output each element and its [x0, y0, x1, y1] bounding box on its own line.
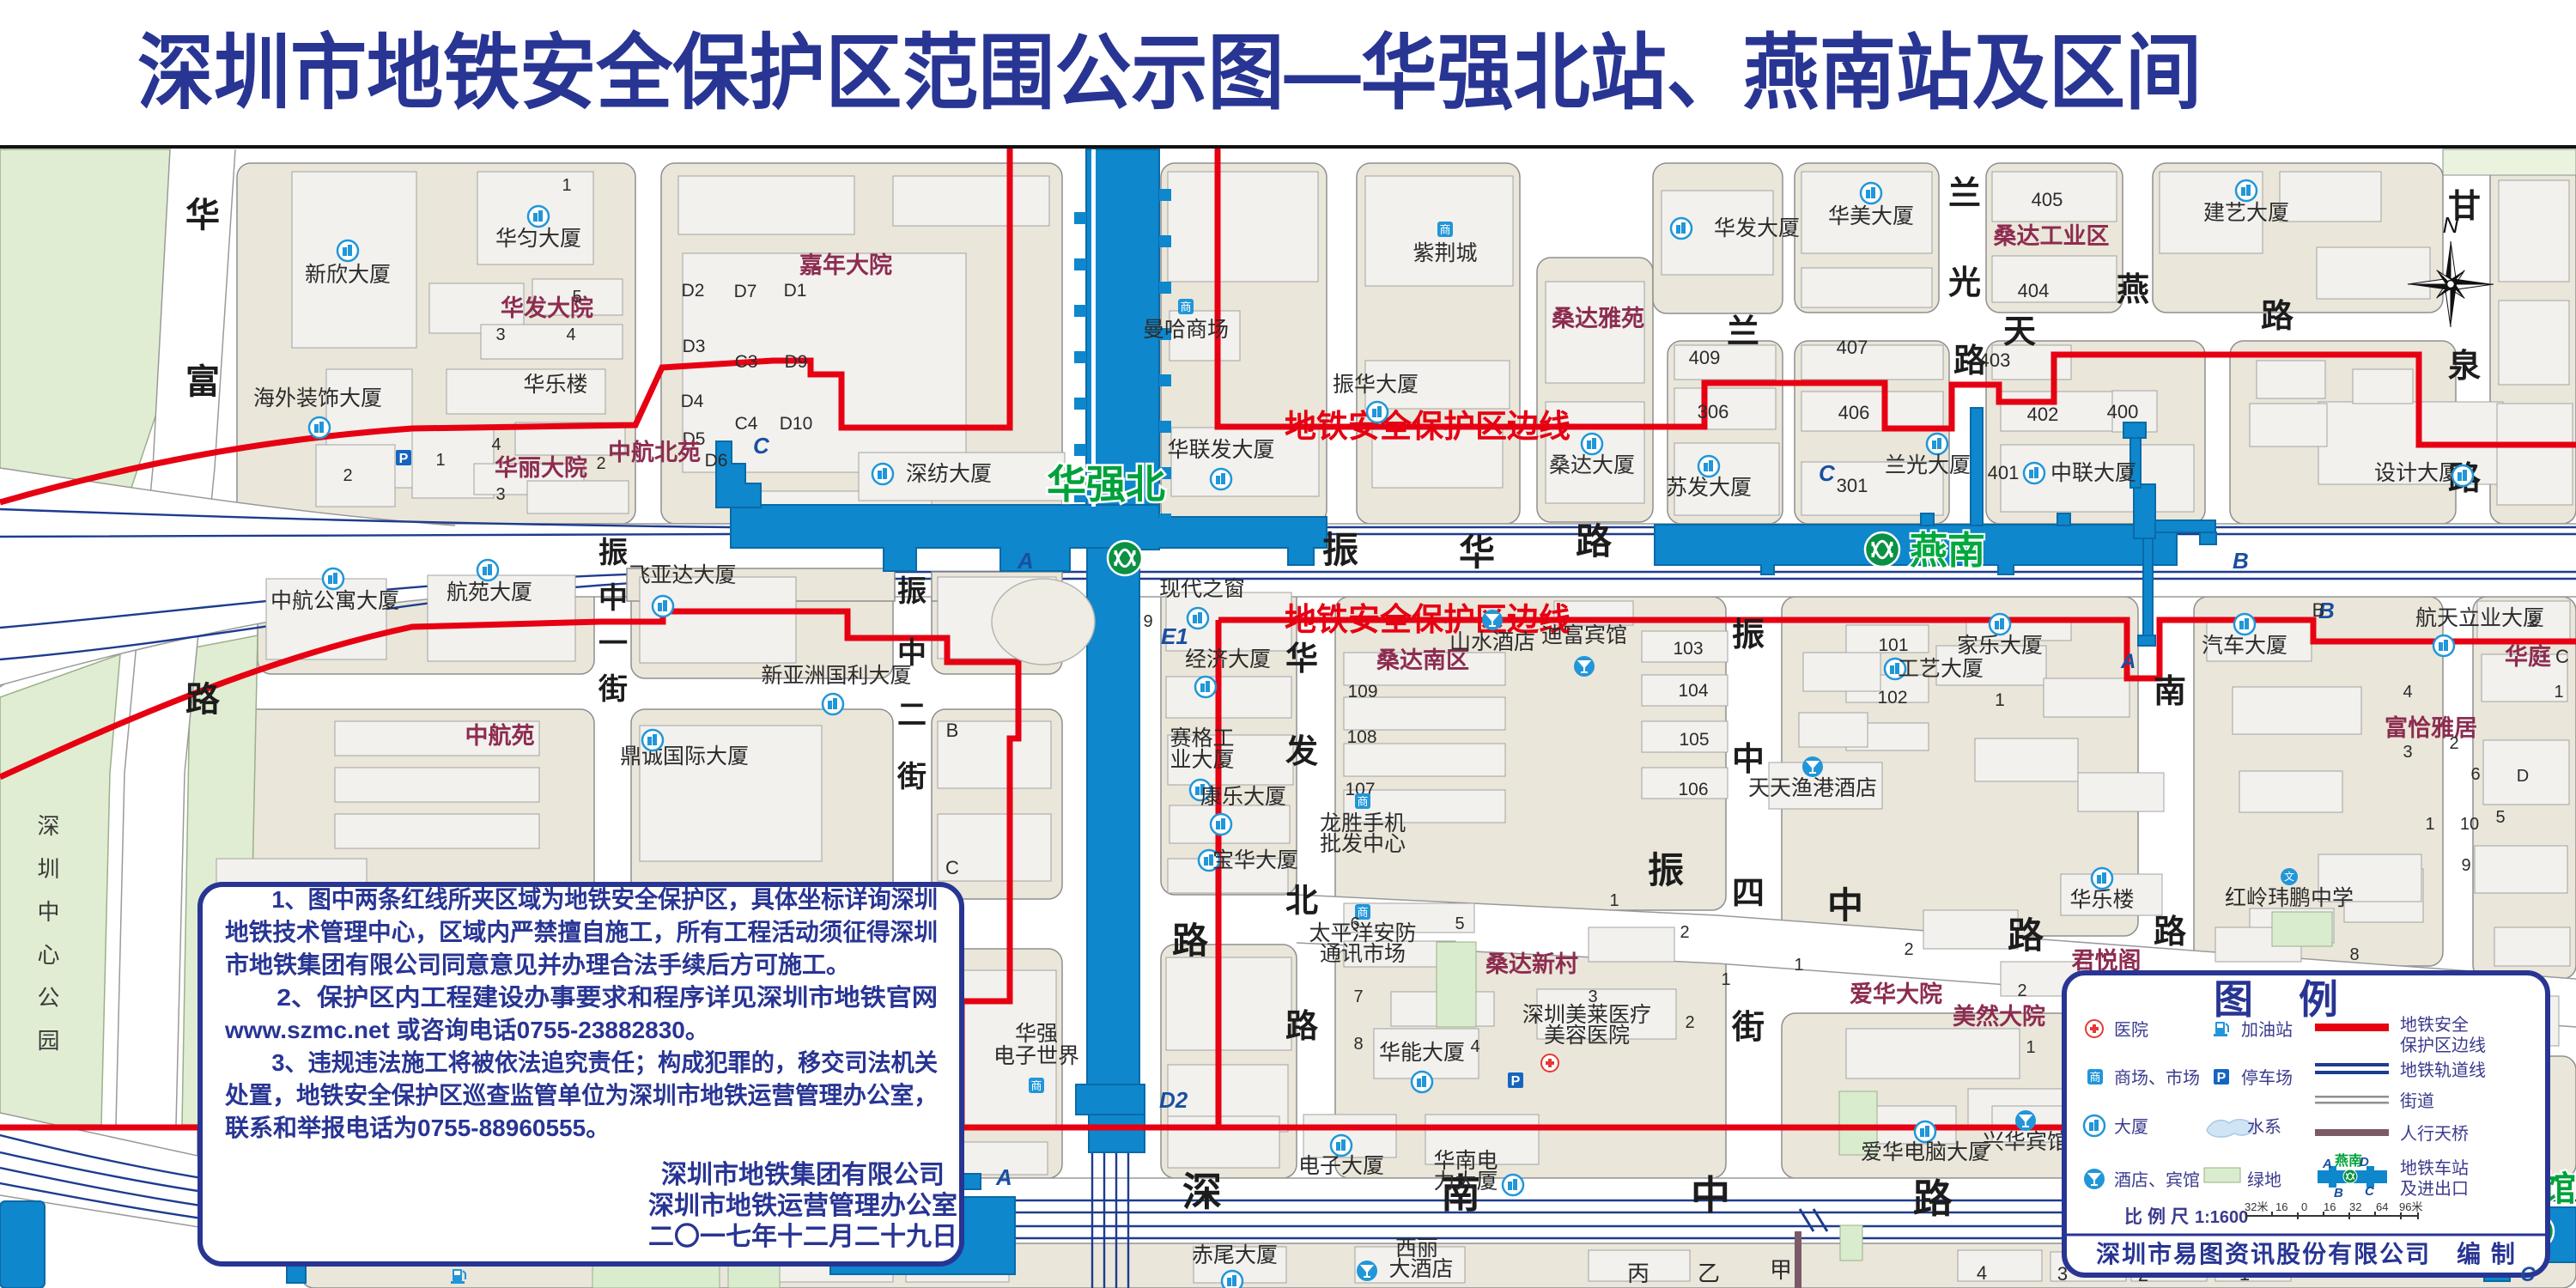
svg-text:4: 4 — [1470, 1037, 1479, 1056]
svg-text:地铁轨道线: 地铁轨道线 — [2400, 1060, 2486, 1080]
svg-text:A: A — [2322, 1157, 2332, 1171]
svg-text:汽车大厦: 汽车大厦 — [2202, 634, 2287, 658]
svg-text:7: 7 — [1353, 987, 1363, 1006]
svg-text:华匀大厦: 华匀大厦 — [495, 227, 581, 251]
svg-text:苏发大厦: 苏发大厦 — [1666, 476, 1752, 500]
svg-text:深圳市地铁运营管理办公室: 深圳市地铁运营管理办公室 — [648, 1191, 957, 1220]
svg-text:中联大厦: 中联大厦 — [2050, 461, 2136, 485]
svg-text:街: 街 — [1731, 1010, 1765, 1046]
svg-text:富: 富 — [185, 363, 220, 401]
svg-text:振华大厦: 振华大厦 — [1333, 373, 1419, 397]
svg-text:5: 5 — [572, 288, 581, 307]
svg-text:文: 文 — [2284, 870, 2294, 883]
svg-text:404: 404 — [2018, 280, 2050, 301]
svg-text:401: 401 — [1988, 462, 2020, 483]
svg-text:地铁安全: 地铁安全 — [2400, 1015, 2469, 1035]
svg-text:振: 振 — [897, 575, 927, 608]
svg-text:1: 1 — [1794, 956, 1803, 975]
svg-text:泉: 泉 — [2448, 349, 2481, 385]
svg-text:华强: 华强 — [1015, 1022, 1058, 1046]
svg-text:C4: C4 — [735, 414, 758, 434]
svg-text:商: 商 — [1439, 223, 1450, 236]
svg-text:中航北苑: 中航北苑 — [608, 439, 701, 465]
svg-text:兰光大厦: 兰光大厦 — [1885, 453, 1971, 477]
svg-text:医院: 医院 — [2114, 1020, 2148, 1040]
svg-text:32: 32 — [2349, 1200, 2361, 1213]
svg-text:光: 光 — [1948, 265, 1981, 301]
svg-text:路: 路 — [1913, 1176, 1953, 1221]
svg-text:B: B — [2334, 1186, 2343, 1200]
svg-text:红岭玮鹏中学: 红岭玮鹏中学 — [2225, 886, 2354, 910]
svg-text:D1: D1 — [784, 281, 807, 301]
svg-text:1: 1 — [2026, 1038, 2035, 1057]
svg-text:曼哈商场: 曼哈商场 — [1143, 318, 1229, 342]
svg-text:建艺大厦: 建艺大厦 — [2203, 201, 2289, 225]
svg-text:街道: 街道 — [2400, 1091, 2434, 1111]
svg-text:2: 2 — [1685, 1013, 1694, 1032]
svg-text:北: 北 — [1285, 884, 1318, 920]
svg-text:5: 5 — [1455, 914, 1464, 933]
svg-text:2: 2 — [596, 454, 605, 473]
svg-text:飞亚达大厦: 飞亚达大厦 — [629, 563, 736, 587]
svg-text:10: 10 — [2460, 815, 2479, 834]
svg-text:B: B — [2233, 548, 2249, 574]
svg-text:108: 108 — [1346, 727, 1376, 747]
svg-text:8: 8 — [1353, 1035, 1363, 1054]
svg-text:96米: 96米 — [2399, 1200, 2422, 1213]
svg-text:人行天桥: 人行天桥 — [2400, 1124, 2469, 1144]
svg-text:中: 中 — [1732, 742, 1765, 778]
svg-text:4: 4 — [2403, 683, 2412, 702]
svg-text:2: 2 — [343, 466, 352, 485]
svg-text:电子大厦: 电子大厦 — [1298, 1154, 1384, 1178]
svg-text:D3: D3 — [683, 337, 706, 356]
svg-text:1: 1 — [2425, 815, 2434, 834]
svg-text:407: 407 — [1837, 337, 1868, 358]
svg-text:通讯市场: 通讯市场 — [1320, 942, 1406, 966]
svg-text:D7: D7 — [734, 282, 757, 301]
svg-text:华: 华 — [185, 197, 220, 234]
svg-text:电子世界: 电子世界 — [993, 1044, 1079, 1068]
svg-text:桑达工业区: 桑达工业区 — [1994, 223, 2110, 249]
svg-text:4: 4 — [1977, 1262, 1987, 1284]
svg-text:3: 3 — [2403, 743, 2412, 762]
svg-text:9: 9 — [1143, 612, 1152, 631]
svg-text:街: 街 — [598, 673, 628, 706]
svg-text:美然大院: 美然大院 — [1953, 1003, 2045, 1030]
svg-text:B: B — [2312, 599, 2325, 621]
svg-text:市地铁集团有限公司同意意见并办理合法手续后方可施工。: 市地铁集团有限公司同意意见并办理合法手续后方可施工。 — [225, 951, 850, 978]
svg-text:路: 路 — [2154, 914, 2187, 951]
svg-text:32米: 32米 — [2245, 1200, 2268, 1213]
svg-text:天: 天 — [2003, 314, 2036, 350]
svg-text:家乐大厦: 家乐大厦 — [1957, 634, 2043, 658]
svg-text:华: 华 — [1285, 641, 1318, 677]
svg-text:振: 振 — [598, 537, 628, 569]
svg-text:地铁车站: 地铁车站 — [2400, 1158, 2469, 1178]
svg-text:109: 109 — [1347, 682, 1377, 702]
svg-text:宝华大厦: 宝华大厦 — [1212, 848, 1298, 872]
svg-text:大厦: 大厦 — [2114, 1117, 2148, 1137]
svg-text:振: 振 — [1322, 530, 1358, 570]
svg-text:爱华电脑大厦: 爱华电脑大厦 — [1861, 1140, 1990, 1164]
svg-text:0: 0 — [2301, 1200, 2307, 1213]
svg-text:102: 102 — [1877, 688, 1907, 708]
svg-text:C: C — [2555, 646, 2569, 667]
svg-text:商场、市场: 商场、市场 — [2114, 1068, 2200, 1088]
svg-text:D: D — [2360, 1155, 2369, 1170]
svg-text:天天渔港酒店: 天天渔港酒店 — [1748, 776, 1877, 800]
svg-text:美容医院: 美容医院 — [1544, 1024, 1630, 1048]
svg-text:酒店、宾馆: 酒店、宾馆 — [2114, 1170, 2200, 1190]
svg-text:405: 405 — [2032, 189, 2063, 210]
svg-text:比例尺: 比例尺 — [2124, 1206, 2194, 1227]
svg-text:加油站: 加油站 — [2241, 1020, 2293, 1040]
svg-text:迪富宾馆: 迪富宾馆 — [1541, 623, 1627, 647]
svg-text:16: 16 — [2275, 1200, 2287, 1213]
svg-text:406: 406 — [1838, 402, 1870, 423]
svg-text:兴华宾馆: 兴华宾馆 — [1983, 1130, 2069, 1154]
svg-text:街: 街 — [896, 761, 927, 793]
svg-text:C: C — [2365, 1184, 2375, 1199]
svg-text:D2: D2 — [682, 281, 705, 301]
svg-text:航天立业大厦: 航天立业大厦 — [2415, 606, 2544, 630]
svg-text:地铁安全保护区边线: 地铁安全保护区边线 — [1285, 408, 1571, 444]
svg-text:路: 路 — [185, 681, 221, 719]
svg-text:设计大厦: 设计大厦 — [2374, 461, 2460, 485]
svg-text:1: 1 — [1609, 891, 1619, 910]
svg-text:3: 3 — [1588, 987, 1597, 1006]
svg-text:图: 图 — [2214, 977, 2253, 1022]
svg-text:A: A — [1017, 548, 1034, 574]
svg-text:6: 6 — [2470, 765, 2480, 784]
svg-text:振: 振 — [1732, 617, 1765, 653]
svg-text:中航公寓大厦: 中航公寓大厦 — [270, 589, 399, 613]
svg-text:联系和举报电话为0755-88960555。: 联系和举报电话为0755-88960555。 — [225, 1114, 610, 1141]
svg-text:P: P — [2217, 1071, 2227, 1085]
svg-text:发: 发 — [1285, 734, 1318, 770]
svg-text:燕南: 燕南 — [1910, 530, 1985, 572]
svg-text:嘉年大院: 嘉年大院 — [799, 252, 892, 278]
svg-text:四: 四 — [1732, 876, 1765, 912]
svg-text:华发大厦: 华发大厦 — [1714, 216, 1800, 240]
svg-text:华: 华 — [1459, 532, 1495, 573]
svg-text:409: 409 — [1689, 347, 1721, 368]
svg-text:华联发大厦: 华联发大厦 — [1167, 438, 1274, 462]
svg-text:批发中心: 批发中心 — [1320, 832, 1406, 856]
svg-text:P: P — [399, 452, 409, 466]
svg-text:D: D — [2517, 767, 2529, 786]
svg-text:二: 二 — [897, 699, 927, 732]
svg-text:深圳市地铁安全保护区范围公示图—华强北站、燕南站及区间: 深圳市地铁安全保护区范围公示图—华强北站、燕南站及区间 — [137, 27, 2202, 119]
svg-text:2: 2 — [1680, 923, 1689, 942]
svg-text:1: 1 — [435, 451, 445, 470]
svg-text:深圳中心公园: 深圳中心公园 — [34, 814, 60, 1072]
svg-text:403: 403 — [1979, 349, 2011, 371]
svg-text:水系: 水系 — [2247, 1117, 2281, 1137]
svg-text:3、违规违法施工将被依法追究责任；构成犯罪的，移交司法机关: 3、违规违法施工将被依法追究责任；构成犯罪的，移交司法机关 — [225, 1048, 938, 1076]
svg-text:爱华大院: 爱华大院 — [1850, 981, 1942, 1007]
svg-text:深圳市地铁集团有限公司: 深圳市地铁集团有限公司 — [661, 1160, 945, 1189]
svg-text:华乐楼: 华乐楼 — [523, 373, 587, 397]
svg-text:400: 400 — [2107, 401, 2139, 422]
svg-text:3: 3 — [495, 325, 505, 344]
svg-text:处置，地铁安全保护区巡查监管单位为深圳市地铁运营管理办公室，: 处置，地铁安全保护区巡查监管单位为深圳市地铁运营管理办公室， — [224, 1081, 938, 1109]
svg-text:兰: 兰 — [1948, 176, 1981, 212]
svg-text:4: 4 — [491, 435, 501, 454]
svg-text:深: 深 — [1182, 1170, 1222, 1214]
svg-text:路: 路 — [2261, 299, 2294, 335]
svg-text:桑达雅苑: 桑达雅苑 — [1552, 306, 1644, 331]
svg-text:106: 106 — [1678, 780, 1708, 799]
svg-text:1: 1 — [2554, 683, 2563, 702]
svg-text:B: B — [946, 720, 959, 741]
svg-text:路: 路 — [2008, 915, 2044, 956]
svg-text:路: 路 — [1576, 521, 1613, 562]
svg-text:二〇一七年十二月二十九日: 二〇一七年十二月二十九日 — [648, 1223, 957, 1251]
svg-text:中: 中 — [1827, 885, 1863, 926]
svg-text:C: C — [753, 433, 770, 459]
svg-text:路: 路 — [1172, 920, 1209, 961]
svg-text:商: 商 — [1357, 795, 1368, 808]
svg-text:兰: 兰 — [1727, 314, 1759, 350]
svg-text:停车场: 停车场 — [2241, 1068, 2293, 1088]
svg-text:康乐大厦: 康乐大厦 — [1200, 785, 1286, 809]
svg-text:深纺大厦: 深纺大厦 — [906, 462, 992, 486]
svg-text:业大厦: 业大厦 — [1170, 748, 1234, 772]
svg-text:鼎诚国际大厦: 鼎诚国际大厦 — [620, 744, 749, 769]
svg-text:经济大厦: 经济大厦 — [1185, 647, 1271, 671]
svg-text:力大厦: 力大厦 — [1433, 1170, 1498, 1194]
svg-text:路: 路 — [1285, 1009, 1319, 1045]
svg-text:101: 101 — [1878, 635, 1908, 655]
svg-text:105: 105 — [1679, 730, 1709, 750]
svg-text:1: 1 — [1995, 690, 2005, 710]
svg-text:D6: D6 — [705, 451, 728, 471]
svg-text:现代之窗: 现代之窗 — [1159, 577, 1245, 601]
svg-text:4: 4 — [566, 325, 575, 344]
svg-text:华乐楼: 华乐楼 — [2069, 888, 2134, 912]
svg-text:地铁技术管理中心，区域内严禁擅自施工，所有工程活动须征得深圳: 地铁技术管理中心，区域内严禁擅自施工，所有工程活动须征得深圳 — [225, 918, 938, 945]
svg-text:104: 104 — [1678, 681, 1708, 701]
svg-text:D10: D10 — [780, 414, 813, 434]
svg-text:2: 2 — [2449, 734, 2458, 753]
svg-text:64: 64 — [2376, 1200, 2388, 1213]
svg-text:甲: 甲 — [1770, 1257, 1792, 1283]
svg-text:D9: D9 — [785, 352, 808, 372]
svg-text:富恰雅居: 富恰雅居 — [2385, 714, 2477, 741]
svg-text:5: 5 — [2495, 808, 2505, 827]
svg-text:商: 商 — [1030, 1079, 1042, 1092]
svg-text:8: 8 — [2349, 945, 2359, 964]
svg-text:绿地: 绿地 — [2247, 1170, 2281, 1190]
svg-text:A: A — [995, 1164, 1012, 1190]
svg-text:新亚洲国利大厦: 新亚洲国利大厦 — [761, 664, 911, 688]
svg-text:振: 振 — [1648, 850, 1684, 890]
svg-text:华丽大院: 华丽大院 — [495, 454, 587, 481]
svg-text:紫荆城: 紫荆城 — [1413, 241, 1477, 265]
svg-text:N: N — [2443, 212, 2459, 238]
svg-text:16: 16 — [2324, 1200, 2336, 1213]
svg-text:深圳市易图资讯股份有限公司 编 制: 深圳市易图资讯股份有限公司 编 制 — [2096, 1240, 2517, 1267]
svg-text:例: 例 — [2299, 977, 2338, 1022]
svg-text:2: 2 — [1904, 940, 1913, 959]
svg-text:C3: C3 — [735, 352, 758, 372]
svg-text:华能大厦: 华能大厦 — [1379, 1041, 1465, 1065]
svg-text:保护区边线: 保护区边线 — [2400, 1036, 2486, 1055]
svg-text:燕: 燕 — [2117, 272, 2149, 308]
svg-text:华美大厦: 华美大厦 — [1828, 204, 1914, 228]
svg-text:中: 中 — [598, 582, 628, 615]
svg-text:一: 一 — [598, 628, 628, 660]
svg-text:C: C — [2520, 1263, 2536, 1286]
svg-text:A: A — [2120, 650, 2136, 673]
svg-text:商: 商 — [1180, 301, 1191, 313]
svg-text:丙: 丙 — [1627, 1261, 1649, 1286]
svg-text:航苑大厦: 航苑大厦 — [447, 580, 532, 605]
svg-text:乙: 乙 — [1698, 1261, 1720, 1286]
svg-text:大酒店: 大酒店 — [1388, 1257, 1453, 1281]
svg-text:山水酒店: 山水酒店 — [1449, 630, 1535, 654]
svg-text:P: P — [1511, 1074, 1521, 1089]
svg-text:E1: E1 — [1161, 623, 1188, 649]
svg-text:2: 2 — [2017, 981, 2026, 1000]
svg-text:1:1600: 1:1600 — [2195, 1208, 2248, 1227]
svg-text:中航苑: 中航苑 — [465, 722, 535, 749]
svg-text:工艺大厦: 工艺大厦 — [1898, 657, 1984, 681]
svg-text:301: 301 — [1837, 475, 1868, 496]
svg-text:9: 9 — [2461, 856, 2470, 875]
svg-text:1: 1 — [1721, 970, 1730, 989]
svg-text:C: C — [945, 857, 959, 878]
svg-text:C: C — [1819, 460, 1836, 486]
svg-text:桑达大厦: 桑达大厦 — [1549, 453, 1635, 477]
svg-text:6: 6 — [1350, 914, 1359, 933]
svg-text:1、图中两条红线所夹区域为地铁安全保护区，具体坐标详询深圳: 1、图中两条红线所夹区域为地铁安全保护区，具体坐标详询深圳 — [225, 885, 938, 913]
svg-text:华庭: 华庭 — [2505, 643, 2551, 670]
svg-text:赤尾大厦: 赤尾大厦 — [1192, 1243, 1278, 1267]
svg-text:1: 1 — [562, 176, 571, 195]
svg-text:燕南: 燕南 — [2335, 1152, 2362, 1169]
svg-text:及进出口: 及进出口 — [2400, 1179, 2469, 1199]
svg-text:华强北: 华强北 — [1047, 462, 1165, 507]
svg-text:海外装饰大厦: 海外装饰大厦 — [253, 386, 382, 410]
svg-text:桑达新村: 桑达新村 — [1485, 951, 1578, 977]
svg-text:103: 103 — [1673, 639, 1703, 659]
svg-text:商: 商 — [2089, 1071, 2100, 1084]
svg-text:D4: D4 — [681, 392, 704, 411]
svg-text:2、保护区内工程建设办事要求和程序详见深圳市地铁官网: 2、保护区内工程建设办事要求和程序详见深圳市地铁官网 — [225, 983, 938, 1011]
svg-text:306: 306 — [1698, 401, 1729, 422]
svg-text:402: 402 — [2027, 404, 2059, 425]
svg-text:新欣大厦: 新欣大厦 — [305, 263, 391, 287]
svg-text:赛格工: 赛格工 — [1170, 726, 1234, 750]
svg-text:3: 3 — [495, 485, 505, 504]
svg-text:南: 南 — [2154, 674, 2186, 710]
svg-text:中: 中 — [1691, 1173, 1730, 1218]
svg-text:2: 2 — [2528, 612, 2537, 631]
svg-text:D2: D2 — [1159, 1087, 1188, 1113]
svg-text:www.szmc.net 或咨询电话0755-2388283: www.szmc.net 或咨询电话0755-23882830。 — [224, 1017, 709, 1043]
